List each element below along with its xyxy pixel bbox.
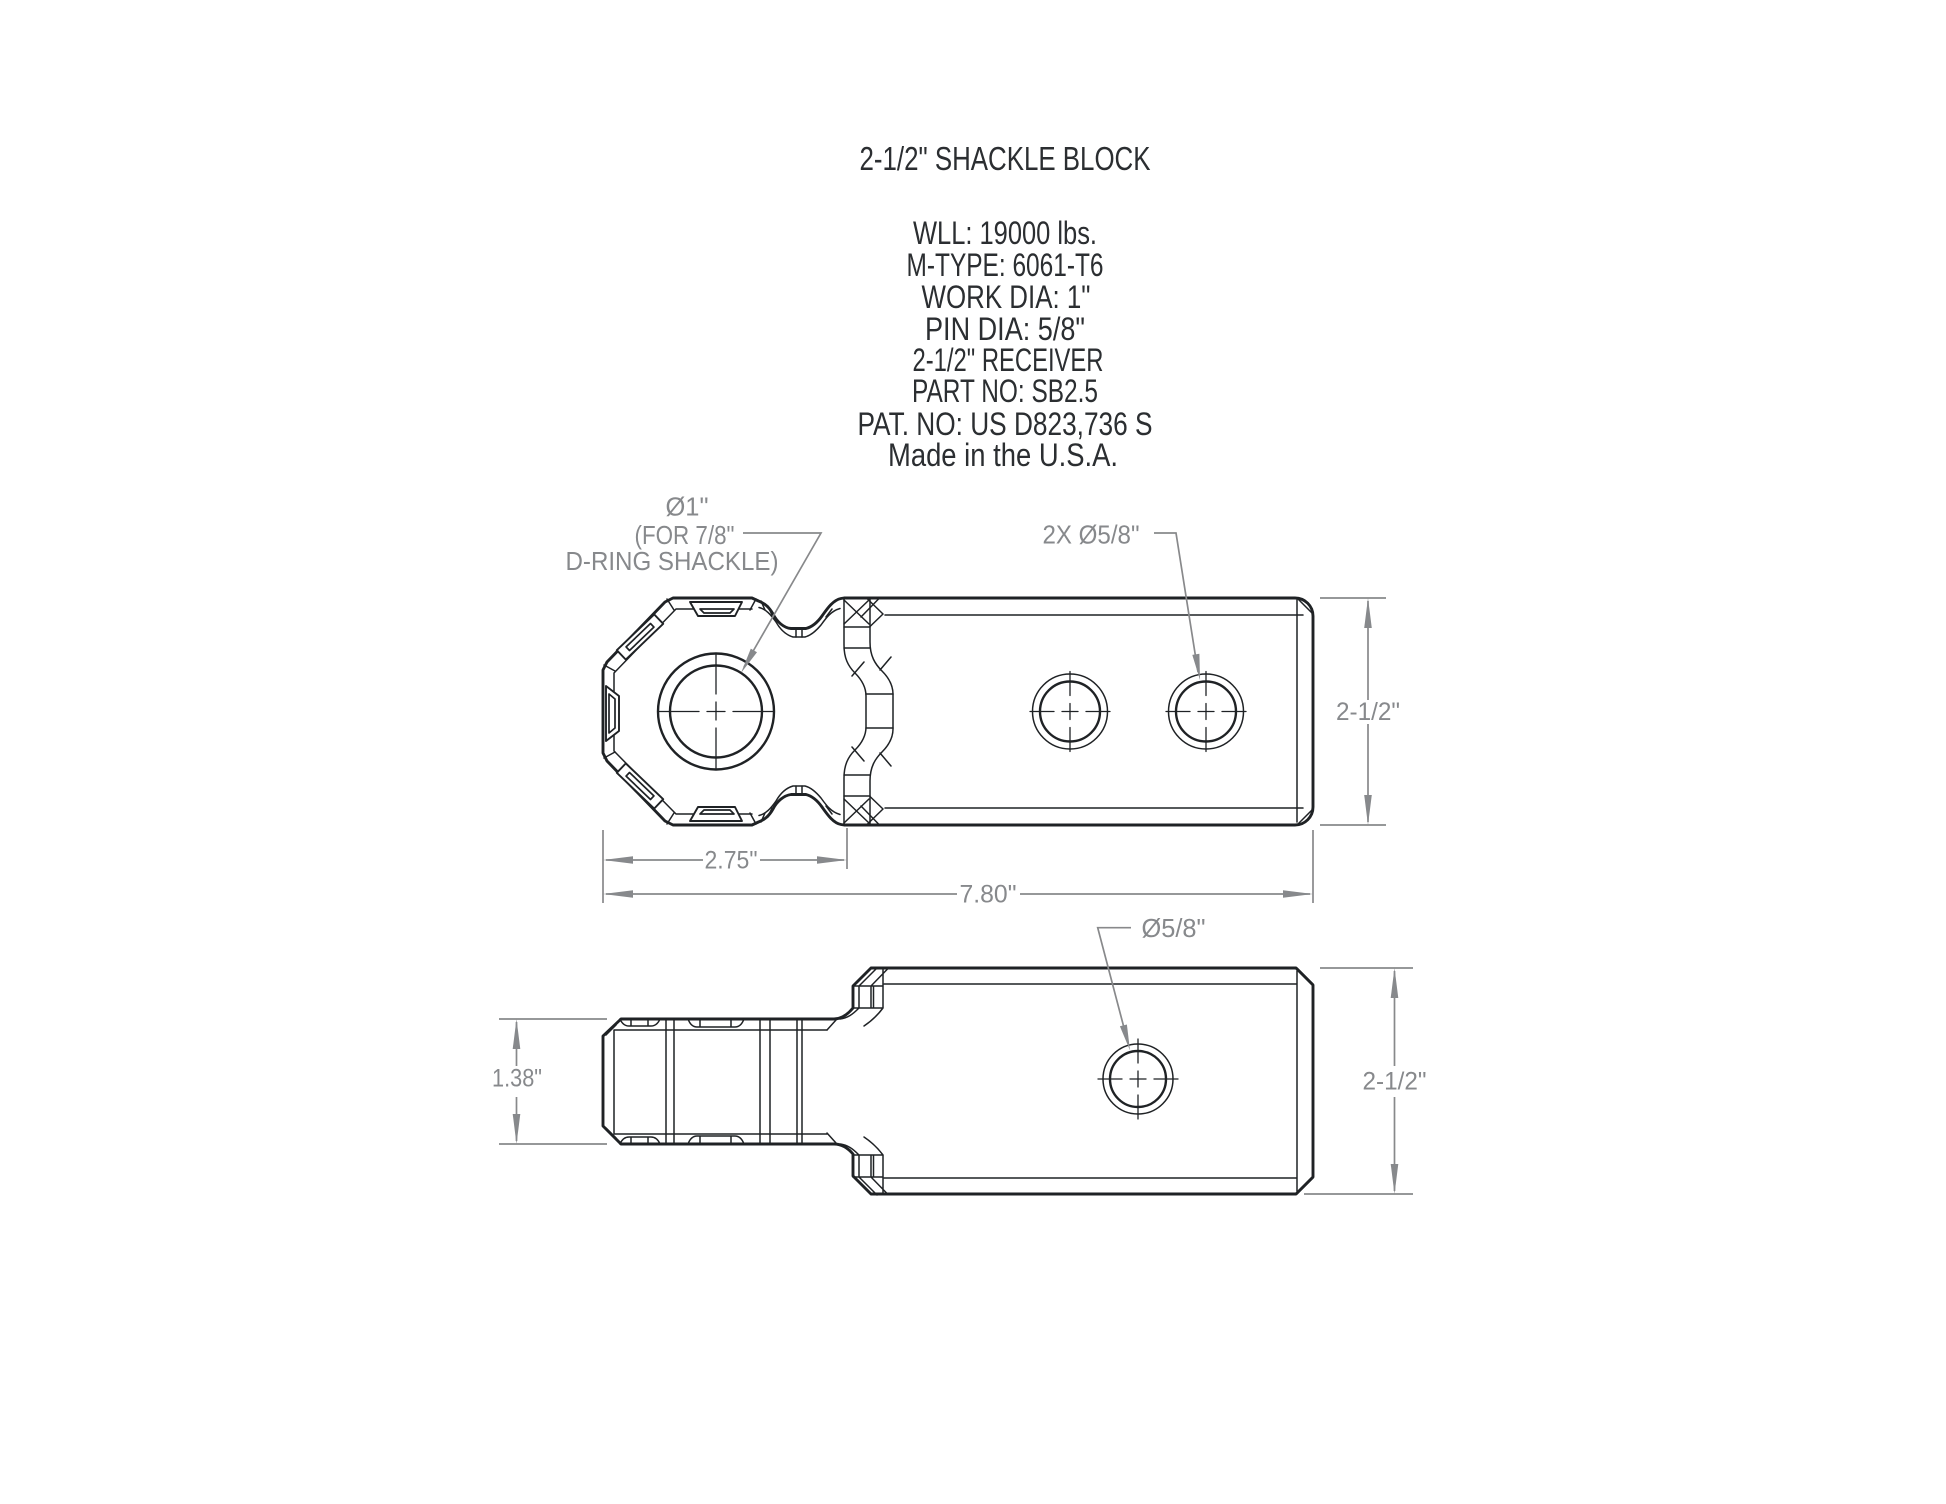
svg-text:2X Ø5/8": 2X Ø5/8" (1043, 520, 1140, 550)
svg-text:2-1/2" SHACKLE BLOCK: 2-1/2" SHACKLE BLOCK (860, 140, 1151, 177)
svg-text:PART NO: SB2.5: PART NO: SB2.5 (912, 373, 1098, 409)
svg-text:WLL: 19000 lbs.: WLL: 19000 lbs. (913, 215, 1097, 251)
svg-text:7.80": 7.80" (960, 881, 1017, 909)
svg-text:M-TYPE: 6061-T6: M-TYPE: 6061-T6 (907, 247, 1104, 283)
svg-text:2-1/2": 2-1/2" (1363, 1068, 1427, 1096)
svg-text:WORK DIA: 1": WORK DIA: 1" (922, 279, 1091, 315)
svg-text:2.75": 2.75" (705, 847, 758, 875)
svg-text:1.38": 1.38" (492, 1065, 542, 1093)
svg-text:D-RING SHACKLE): D-RING SHACKLE) (566, 546, 779, 576)
svg-text:Ø1": Ø1" (666, 492, 709, 522)
svg-text:2-1/2": 2-1/2" (1336, 698, 1400, 726)
svg-text:Made in the U.S.A.: Made in the U.S.A. (888, 437, 1118, 473)
svg-text:Ø5/8": Ø5/8" (1142, 913, 1206, 943)
